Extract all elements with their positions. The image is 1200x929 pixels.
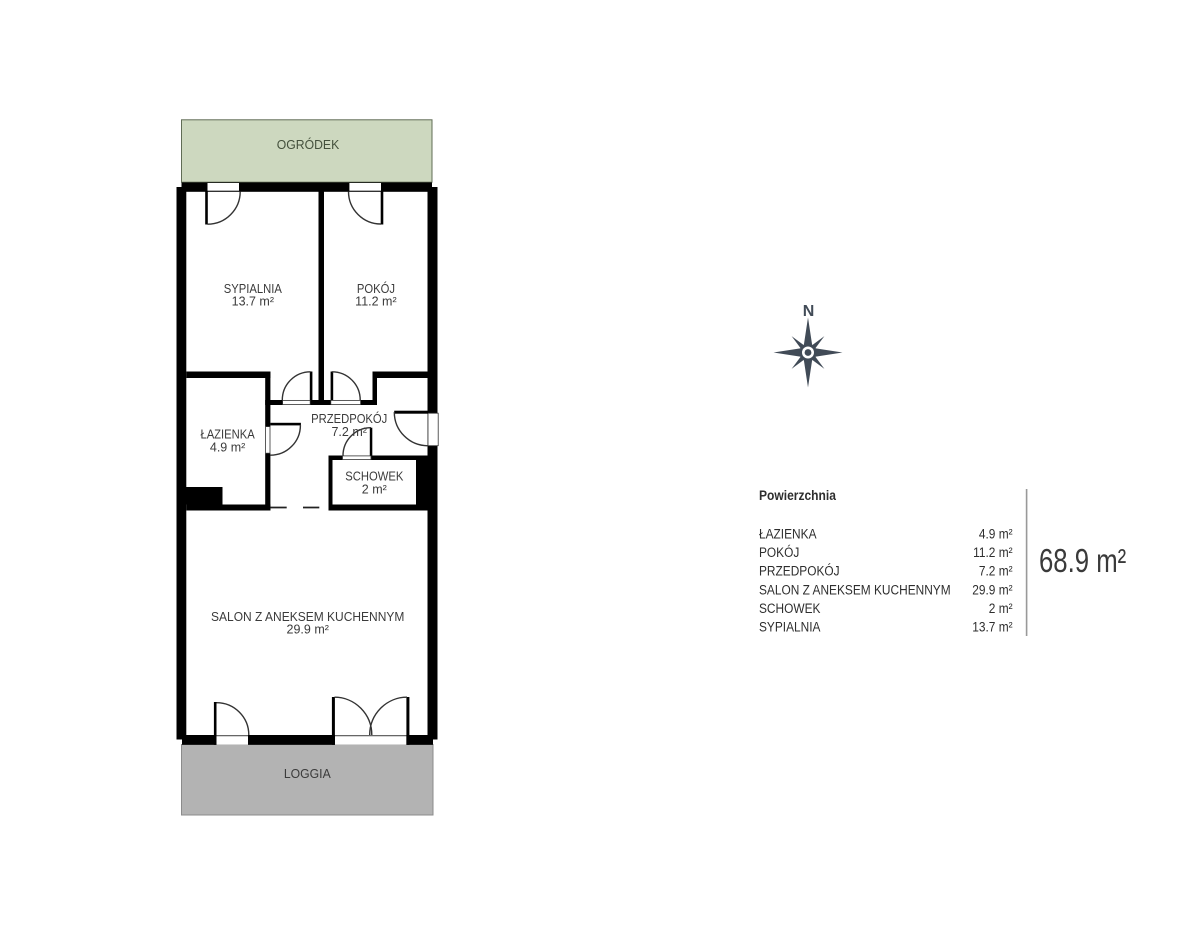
svg-text:SALON Z ANEKSEM KUCHENNYM: SALON Z ANEKSEM KUCHENNYM — [759, 581, 951, 597]
svg-text:N: N — [803, 303, 815, 320]
svg-text:SCHOWEK: SCHOWEK — [759, 600, 821, 616]
svg-text:LOGGIA: LOGGIA — [284, 767, 331, 781]
svg-text:2 m²: 2 m² — [989, 600, 1013, 616]
svg-text:SYPIALNIA: SYPIALNIA — [759, 619, 821, 635]
svg-text:13.7 m²: 13.7 m² — [972, 619, 1013, 635]
svg-text:13.7 m²: 13.7 m² — [232, 295, 274, 309]
svg-text:68.9 m²: 68.9 m² — [1039, 543, 1126, 580]
svg-text:7.2 m²: 7.2 m² — [979, 563, 1013, 579]
svg-text:ŁAZIENKA: ŁAZIENKA — [759, 526, 817, 542]
svg-text:2 m²: 2 m² — [362, 482, 387, 496]
svg-text:PRZEDPOKÓJ: PRZEDPOKÓJ — [311, 410, 387, 426]
svg-text:11.2 m²: 11.2 m² — [973, 544, 1013, 560]
svg-text:Powierzchnia: Powierzchnia — [759, 487, 837, 503]
svg-text:11.2 m²: 11.2 m² — [355, 295, 396, 309]
svg-text:4.9 m²: 4.9 m² — [979, 526, 1013, 542]
svg-text:PRZEDPOKÓJ: PRZEDPOKÓJ — [759, 563, 840, 579]
svg-text:ŁAZIENKA: ŁAZIENKA — [200, 427, 254, 442]
svg-text:POKÓJ: POKÓJ — [759, 544, 799, 560]
svg-text:29.9 m²: 29.9 m² — [287, 623, 329, 637]
svg-text:OGRÓDEK: OGRÓDEK — [277, 137, 340, 152]
svg-text:29.9 m²: 29.9 m² — [972, 581, 1013, 597]
svg-text:SCHOWEK: SCHOWEK — [345, 469, 403, 484]
svg-text:4.9 m²: 4.9 m² — [210, 441, 245, 455]
svg-text:7.2 m²: 7.2 m² — [331, 425, 366, 439]
